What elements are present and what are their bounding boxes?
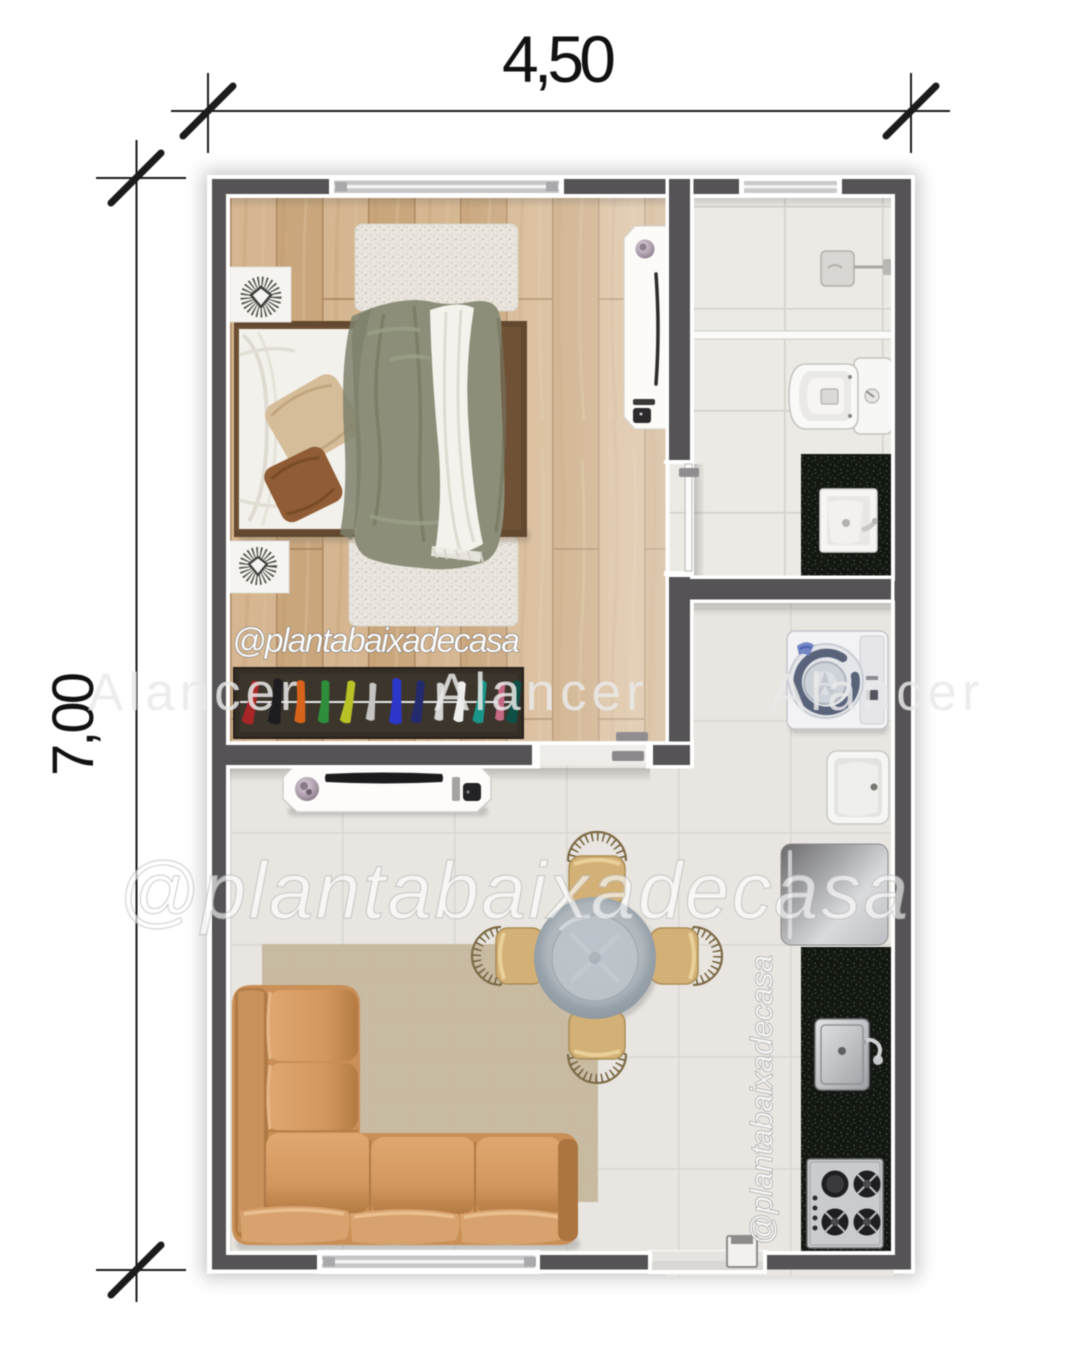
svg-text:@plantabaixadecasa: @plantabaixadecasa <box>118 846 908 935</box>
svg-text:4,50: 4,50 <box>502 22 616 96</box>
svg-text:Alancer: Alancer <box>770 663 985 722</box>
svg-text:Alancer: Alancer <box>88 663 303 722</box>
svg-text:Alancer: Alancer <box>434 663 649 722</box>
svg-text:@plantabaixadecasa: @plantabaixadecasa <box>232 622 520 660</box>
svg-text:@plantabaixadecasa: @plantabaixadecasa <box>744 955 779 1245</box>
